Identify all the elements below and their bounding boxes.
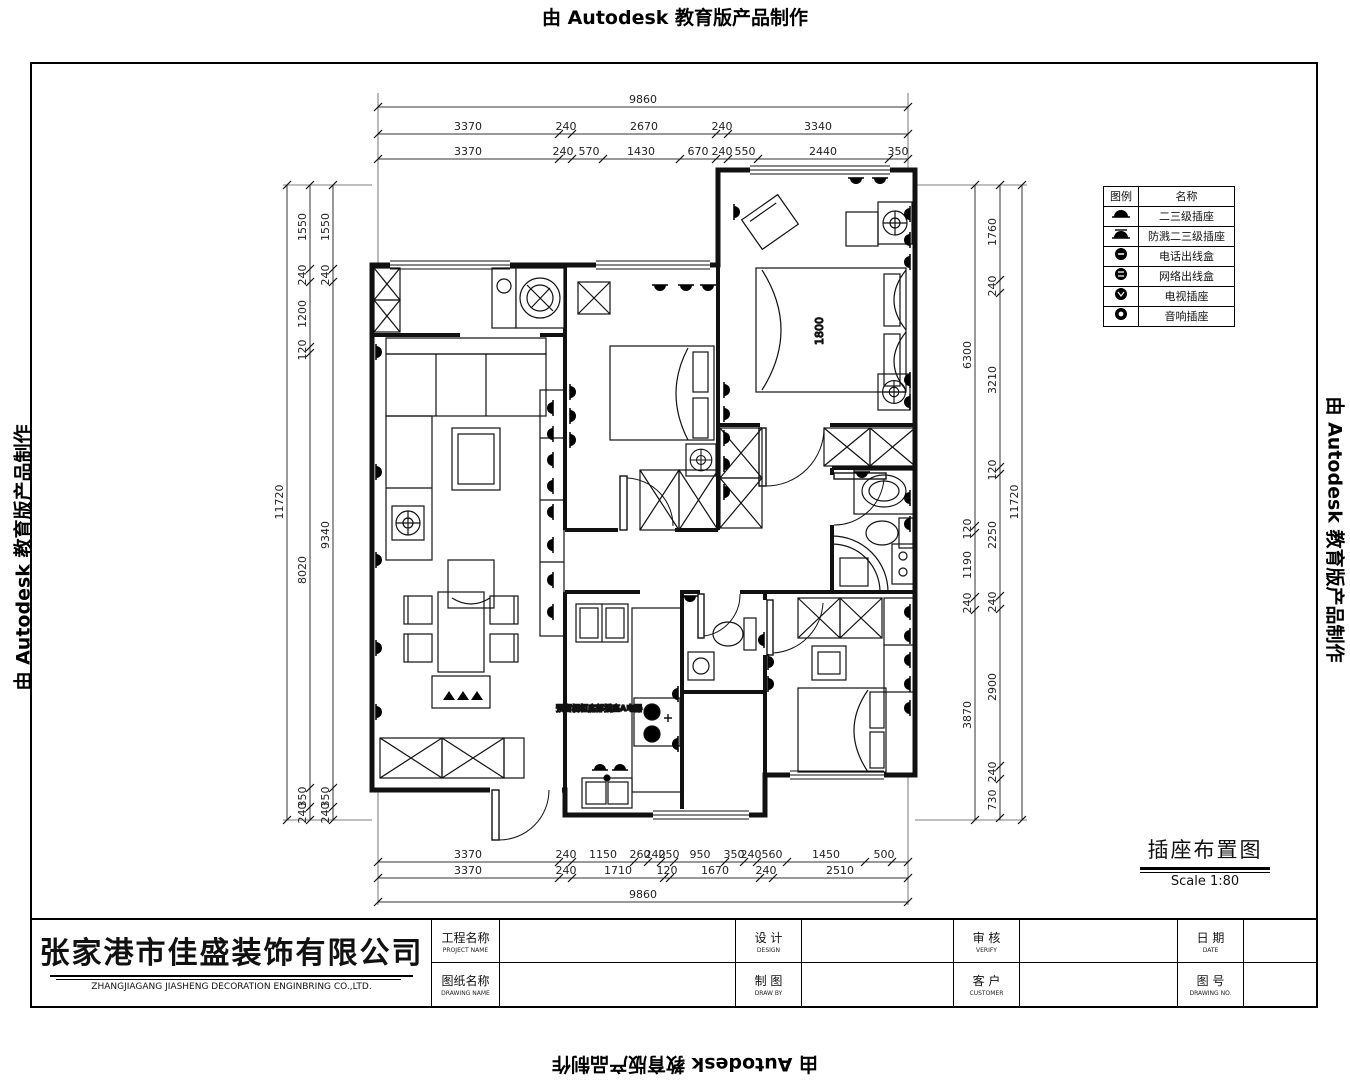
bottom-dimensions: 3370 240 1150 260 240 250 950 350 240 56… xyxy=(454,848,895,901)
laundry-sink xyxy=(492,268,516,328)
dimension-label: 8020 xyxy=(296,556,309,584)
bedroom3-desk xyxy=(812,646,846,680)
dimension-label: 6300 xyxy=(961,341,974,369)
splashproof-socket-icon xyxy=(1112,227,1130,246)
socket-symbol xyxy=(612,764,628,770)
dimension-label: 3210 xyxy=(986,366,999,394)
company-block: 张家港市佳盛装饰有限公司 ZHANGJIAGANG JIASHENG DECOR… xyxy=(32,920,432,1006)
dimension-label: 240 xyxy=(556,848,577,861)
tv-socket-icon xyxy=(1114,287,1128,307)
legend-row: 电话出线盒 xyxy=(1104,246,1234,266)
bedroom2-nightstand xyxy=(686,444,716,476)
title-underline-thin xyxy=(1140,872,1270,873)
socket-symbol xyxy=(724,406,730,422)
dining-chair xyxy=(404,634,432,662)
phone-outlet-icon xyxy=(1114,247,1128,267)
dimension-label: 120 xyxy=(961,519,974,540)
dimension-label: 120 xyxy=(986,460,999,481)
dimension-label: 1450 xyxy=(812,848,840,861)
dining-cabinet xyxy=(380,738,524,778)
dimension-label: 3370 xyxy=(454,145,482,158)
window xyxy=(750,164,890,176)
top-dimensions: 9860 3370 240 2670 240 3340 3370 240 570… xyxy=(454,93,909,158)
dimension-label: 9340 xyxy=(319,521,332,549)
sideboard xyxy=(432,676,490,708)
field-design: 设 计DESIGN xyxy=(736,920,802,963)
field-project-name: 工程名称PROJECT NAME xyxy=(432,920,500,963)
dimension-label: 350 xyxy=(888,145,909,158)
master-chair xyxy=(742,195,799,250)
drawing-title: 插座布置图 xyxy=(1140,834,1270,864)
dimension-label: 3370 xyxy=(454,120,482,133)
socket-symbol xyxy=(547,478,553,494)
network-outlet-icon xyxy=(1114,267,1128,287)
field-draw-by: 制 图DRAW BY xyxy=(736,963,802,1006)
dimension-label: 1670 xyxy=(701,864,729,877)
socket-symbol xyxy=(570,408,576,424)
dimension-label: 550 xyxy=(735,145,756,158)
dimension-label: 500 xyxy=(874,848,895,861)
dimension-label: 1150 xyxy=(589,848,617,861)
dining-chair xyxy=(490,634,518,662)
socket-symbol xyxy=(768,676,774,692)
window xyxy=(596,259,710,271)
title-block-grid: 工程名称PROJECT NAME 设 计DESIGN 审 核VERIFY 日 期… xyxy=(432,920,1316,1006)
bedroom3-wardrobe xyxy=(798,598,882,638)
dimension-label: 3370 xyxy=(454,848,482,861)
legend-row: 网络出线盒 xyxy=(1104,266,1234,286)
bed-size-label: 1800 xyxy=(813,317,826,345)
field-draw-by-value xyxy=(802,963,954,1006)
socket-2-3-level-icon xyxy=(1112,207,1130,226)
dimension-label: 240 xyxy=(712,120,733,133)
sofa xyxy=(386,338,546,560)
bedroom3-bed xyxy=(798,688,886,772)
coffee-table xyxy=(452,428,500,490)
legend-row: 二三级插座 xyxy=(1104,206,1234,226)
field-drawing-name: 图纸名称DRAWING NAME xyxy=(432,963,500,1006)
field-project-name-value xyxy=(500,920,736,963)
legend-row: 音响插座 xyxy=(1104,306,1234,326)
dimension-label: 1760 xyxy=(986,218,999,246)
dimension-label: 240 xyxy=(712,145,733,158)
master-desk xyxy=(846,212,878,246)
small-bath-basin xyxy=(688,652,714,680)
dimension-label: 240 xyxy=(556,864,577,877)
dimension-label: 240 xyxy=(556,120,577,133)
dimension-label: 1550 xyxy=(296,213,309,241)
legend-row-name: 网络出线盒 xyxy=(1139,267,1234,286)
window xyxy=(790,769,884,781)
socket-symbol xyxy=(904,232,910,248)
audio-socket-icon xyxy=(1114,307,1128,327)
kitchen-wall-cabinet xyxy=(576,604,628,642)
dimension-label: 240 xyxy=(986,276,999,297)
dimension-label: 250 xyxy=(659,848,680,861)
drawing-title-block: 插座布置图 Scale 1:80 xyxy=(1140,834,1270,889)
legend-header-symbol: 图例 xyxy=(1104,187,1139,206)
dimension-label: 3870 xyxy=(961,701,974,729)
dimension-label: 2900 xyxy=(986,673,999,701)
socket-symbol xyxy=(904,628,910,644)
socket-symbol xyxy=(904,676,910,692)
entry-door xyxy=(492,790,549,840)
dimension-label: 240 xyxy=(986,762,999,783)
legend-row-name: 电视插座 xyxy=(1139,287,1234,306)
company-name: 张家港市佳盛装饰有限公司 xyxy=(32,928,431,972)
socket-symbol xyxy=(734,204,740,220)
socket-symbol xyxy=(570,384,576,400)
armchair xyxy=(448,560,494,608)
socket-symbol xyxy=(547,537,553,553)
field-drawing-no: 图 号DRAWING NO. xyxy=(1178,963,1244,1006)
legend-row: 电视插座 xyxy=(1104,286,1234,306)
dimension-label: 1190 xyxy=(961,551,974,579)
dimension-label: 1430 xyxy=(627,145,655,158)
socket-symbol xyxy=(724,430,730,446)
socket-symbol xyxy=(724,382,730,398)
company-underline xyxy=(50,975,413,977)
dimension-label: 570 xyxy=(579,145,600,158)
legend-header: 图例 名称 xyxy=(1104,187,1234,206)
socket-symbol xyxy=(904,652,910,668)
legend-row-name: 防溅二三级插座 xyxy=(1139,227,1234,246)
title-block: 张家港市佳盛装饰有限公司 ZHANGJIAGANG JIASHENG DECOR… xyxy=(30,918,1318,1008)
dimension-label: 240 xyxy=(319,803,332,824)
socket-symbol xyxy=(547,604,553,620)
small-bath-toilet xyxy=(713,618,756,650)
socket-symbol xyxy=(376,704,382,720)
field-verify-value xyxy=(1020,920,1178,963)
legend-row-name: 电话出线盒 xyxy=(1139,247,1234,266)
dimension-label: 240 xyxy=(319,265,332,286)
dimension-label: 240 xyxy=(986,592,999,613)
socket-symbol xyxy=(547,452,553,468)
field-drawing-name-value xyxy=(500,963,736,1006)
socket-symbol xyxy=(678,285,694,291)
socket-symbol xyxy=(682,596,698,602)
dimension-label: 240 xyxy=(296,803,309,824)
socket-symbol xyxy=(768,654,774,670)
company-name-english: ZHANGJIAGANG JIASHENG DECORATION ENGINBR… xyxy=(32,982,431,992)
field-date-value xyxy=(1244,920,1316,963)
dimension-label: 2670 xyxy=(630,120,658,133)
socket-symbol xyxy=(376,464,382,480)
dimension-label: 240 xyxy=(553,145,574,158)
dimension-label: 240 xyxy=(961,593,974,614)
dimension-label: 240 xyxy=(741,848,762,861)
scale-label: Scale 1:80 xyxy=(1140,874,1270,889)
legend-row-name: 音响插座 xyxy=(1139,307,1234,326)
socket-symbol xyxy=(700,285,716,291)
dimension-label: 9860 xyxy=(629,888,657,901)
legend-table: 图例 名称 二三级插座 防溅二三级插座 电话出线盒 网络出线盒 电视插座 音响插… xyxy=(1103,186,1235,327)
socket-symbol xyxy=(570,432,576,448)
socket-symbol xyxy=(592,764,608,770)
dimension-label: 1550 xyxy=(319,213,332,241)
socket-symbol xyxy=(547,504,553,520)
socket-symbol xyxy=(848,178,864,184)
shower xyxy=(832,536,914,592)
socket-symbol xyxy=(547,400,553,416)
socket-symbol xyxy=(376,552,382,568)
company-underline-thin xyxy=(56,979,401,980)
dimension-label: 2250 xyxy=(986,521,999,549)
dimension-label: 240 xyxy=(296,265,309,286)
socket-symbol xyxy=(652,285,668,291)
kitchen-sink xyxy=(582,775,632,808)
dimension-label: 120 xyxy=(296,340,309,361)
field-customer-value xyxy=(1020,963,1178,1006)
bedroom2-bed xyxy=(610,346,714,440)
dimension-label: 11720 xyxy=(1008,485,1021,520)
dimension-label: 120 xyxy=(657,864,678,877)
dining-chair xyxy=(404,596,432,624)
socket-symbol xyxy=(547,426,553,442)
bedroom2-wardrobe xyxy=(640,470,718,530)
socket-symbol xyxy=(904,490,910,506)
dimension-label: 3340 xyxy=(804,120,832,133)
field-verify: 审 核VERIFY xyxy=(954,920,1020,963)
window xyxy=(653,809,749,821)
dimension-label: 1200 xyxy=(296,300,309,328)
dimension-label: 560 xyxy=(762,848,783,861)
socket-symbol xyxy=(547,572,553,588)
kitchen-note-label: 预留橱柜底部插座A电器 xyxy=(556,703,643,713)
field-customer: 客 户CUSTOMER xyxy=(954,963,1020,1006)
furniture: 1800 xyxy=(374,195,915,808)
bedroom2-door xyxy=(620,476,673,530)
dimension-label: 730 xyxy=(986,790,999,811)
dimension-label: 11720 xyxy=(273,485,286,520)
balcony-cabinets xyxy=(374,268,400,332)
dimension-label: 9860 xyxy=(629,93,657,106)
master-door xyxy=(759,428,824,486)
legend-row: 防溅二三级插座 xyxy=(1104,226,1234,246)
bathroom-door xyxy=(834,473,886,525)
dimension-label: 670 xyxy=(688,145,709,158)
socket-symbol xyxy=(904,700,910,716)
socket-symbol xyxy=(872,178,888,184)
title-underline xyxy=(1140,867,1270,870)
washing-machine xyxy=(516,268,564,328)
bedroom3-door xyxy=(767,600,823,655)
dimension-label: 3370 xyxy=(454,864,482,877)
dimension-label: 240 xyxy=(756,864,777,877)
legend-row-name: 二三级插座 xyxy=(1139,207,1234,226)
small-bath-door xyxy=(698,594,740,638)
dimension-label: 950 xyxy=(690,848,711,861)
socket-symbol xyxy=(758,632,764,648)
socket-symbol xyxy=(376,344,382,360)
dimension-label: 2510 xyxy=(826,864,854,877)
field-drawing-no-value xyxy=(1244,963,1316,1006)
master-closet xyxy=(824,428,915,466)
legend-header-name: 名称 xyxy=(1139,187,1234,206)
floor-outlet-box xyxy=(392,506,424,540)
left-dimensions: 11720 1550 240 1200 120 8020 350 240 155… xyxy=(273,213,332,824)
field-design-value xyxy=(802,920,954,963)
dimension-label: 2440 xyxy=(809,145,837,158)
right-dimensions: 11720 6300 120 1190 240 3870 1760 240 32… xyxy=(961,218,1021,811)
dimension-label: 1710 xyxy=(604,864,632,877)
field-date: 日 期DATE xyxy=(1178,920,1244,963)
socket-symbol xyxy=(376,640,382,656)
master-bed: 1800 xyxy=(756,268,906,392)
socket-symbol xyxy=(904,604,910,620)
bedroom2-cabinet xyxy=(578,282,610,314)
